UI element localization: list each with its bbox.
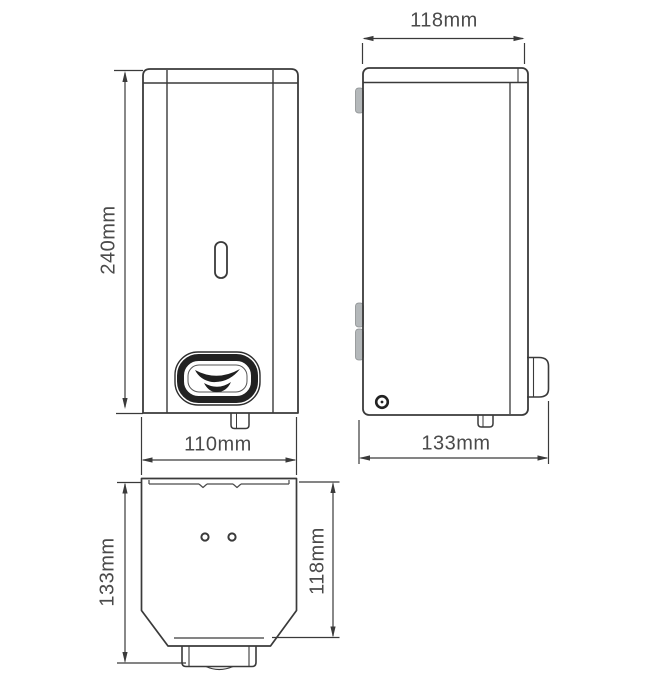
front-body-outline	[143, 69, 298, 413]
plan-screw-holes	[201, 533, 235, 540]
dim-side-depth-top	[363, 36, 525, 64]
plan-button-housing	[182, 646, 256, 667]
front-nozzle	[231, 413, 249, 429]
lock-screw-icon	[376, 396, 388, 408]
dim-label-plan-depth-overall: 133mm	[97, 537, 120, 606]
screw-hole-right	[228, 533, 235, 540]
plan-body-outline	[142, 479, 297, 647]
sight-window	[215, 242, 227, 278]
dim-label-side-depth-top: 118mm	[410, 10, 478, 33]
dim-label-plan-depth-body: 118mm	[307, 527, 330, 595]
side-view	[356, 68, 549, 427]
dispense-arrows-icon	[195, 369, 240, 392]
side-body-outline	[363, 68, 528, 415]
dim-label-side-depth-overall: 133mm	[421, 433, 490, 456]
side-nozzle	[478, 415, 493, 427]
dim-label-front-width: 110mm	[184, 434, 252, 457]
plan-view	[142, 479, 297, 670]
dispenser-technical-drawing: 240mm 110mm 118mm 133mm 133mm 118mm	[0, 0, 645, 700]
dim-plan-depth-overall	[117, 483, 186, 664]
dim-label-front-height: 240mm	[98, 205, 121, 274]
screw-hole-left	[201, 533, 208, 540]
dimension-lines	[114, 36, 549, 663]
side-push-button	[527, 358, 549, 398]
front-view	[143, 69, 298, 429]
plan-back-edge-detail	[149, 480, 289, 488]
push-button	[175, 352, 260, 405]
